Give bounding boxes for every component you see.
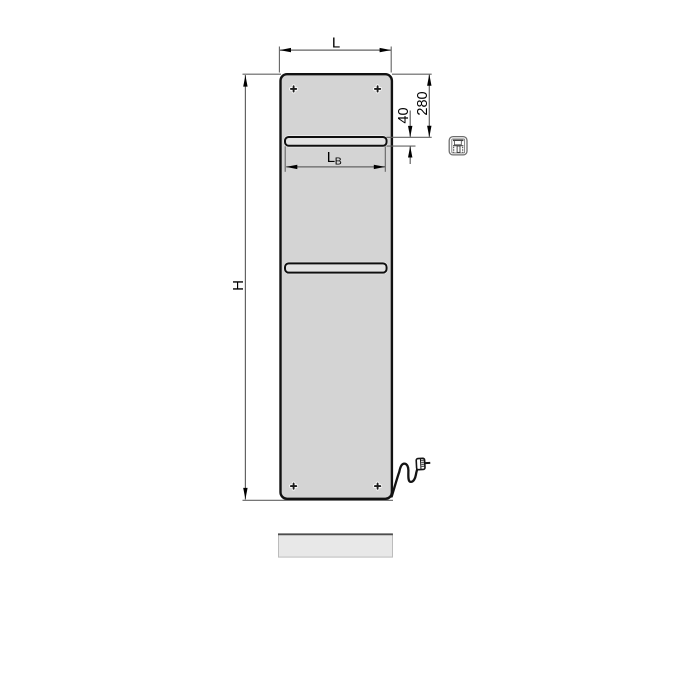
svg-text:B: B [335,155,342,167]
svg-text:280: 280 [415,91,431,115]
svg-text:40: 40 [396,107,412,123]
svg-text:H: H [230,280,247,291]
svg-text:L: L [332,34,340,51]
